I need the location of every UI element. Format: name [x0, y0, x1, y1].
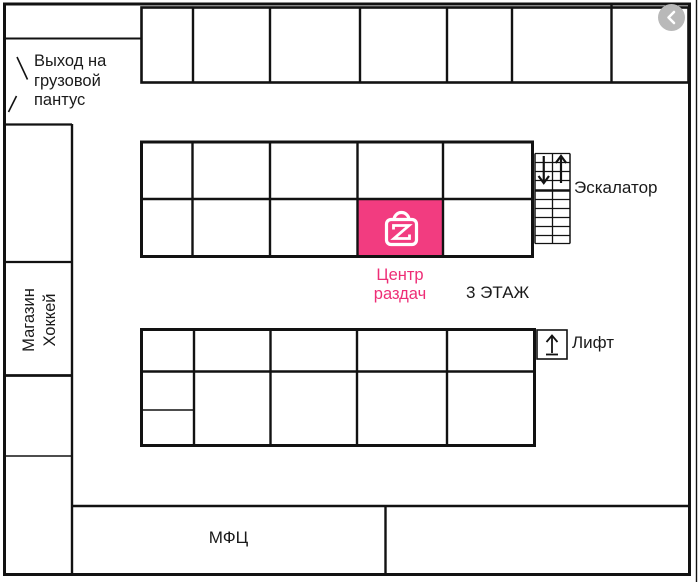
lift-icon [536, 329, 568, 360]
shopping-bag-z-icon [378, 205, 424, 251]
chevron-left-icon [658, 4, 685, 31]
floor-map-screen: Выход на грузовой пантус Магазин Хоккей … [0, 0, 700, 582]
back-button[interactable] [658, 4, 685, 31]
up-arrow-icon [556, 156, 567, 183]
pickup-point-label: Центр раздач [356, 266, 444, 304]
mfc-room-label: МФЦ [72, 528, 385, 548]
floor-number-label: 3 ЭТАЖ [466, 283, 529, 303]
escalator-icon [534, 152, 571, 245]
escalator-label: Эскалатор [574, 178, 658, 198]
hockey-store-label: Магазин Хоккей [19, 264, 63, 376]
down-arrow-icon [539, 156, 550, 183]
lift-label: Лифт [572, 333, 614, 353]
exit-cargo-ramp-label: Выход на грузовой пантус [34, 52, 129, 111]
up-arrow-from-bar-icon [546, 336, 558, 355]
